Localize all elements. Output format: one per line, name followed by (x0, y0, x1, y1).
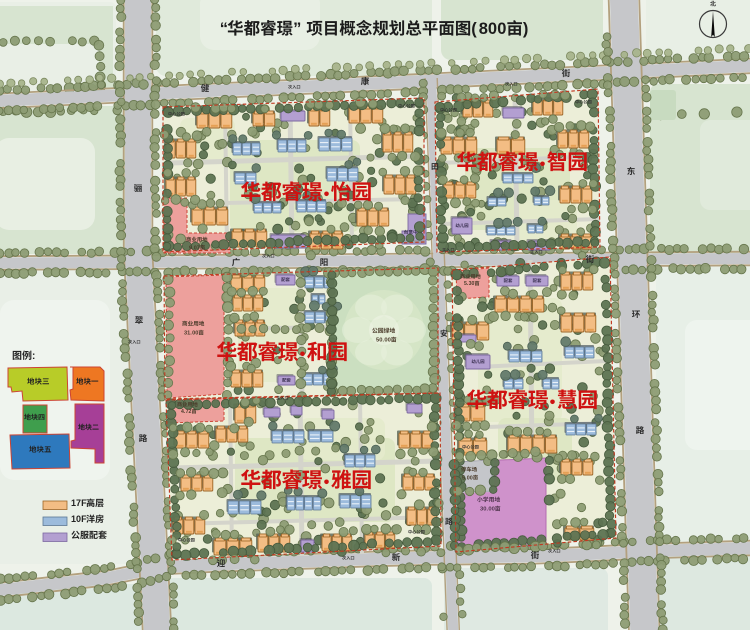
svg-text:0: 0 (488, 20, 497, 38)
svg-text:0: 0 (472, 281, 475, 287)
svg-text:0: 0 (492, 507, 495, 513)
svg-text::: : (32, 351, 35, 362)
svg-text:(: ( (471, 20, 477, 38)
svg-text:): ) (523, 20, 529, 38)
svg-text:0: 0 (195, 331, 198, 337)
svg-text:0: 0 (388, 338, 391, 344)
svg-text:F: F (81, 498, 87, 508)
svg-text:7: 7 (197, 245, 200, 251)
svg-text:0: 0 (497, 20, 506, 38)
svg-text:F: F (81, 514, 87, 524)
svg-text:”: ” (293, 20, 301, 38)
svg-text:“: “ (220, 20, 228, 38)
svg-text:0: 0 (470, 475, 473, 481)
svg-text:2: 2 (189, 409, 192, 415)
svg-text:8: 8 (479, 20, 488, 38)
